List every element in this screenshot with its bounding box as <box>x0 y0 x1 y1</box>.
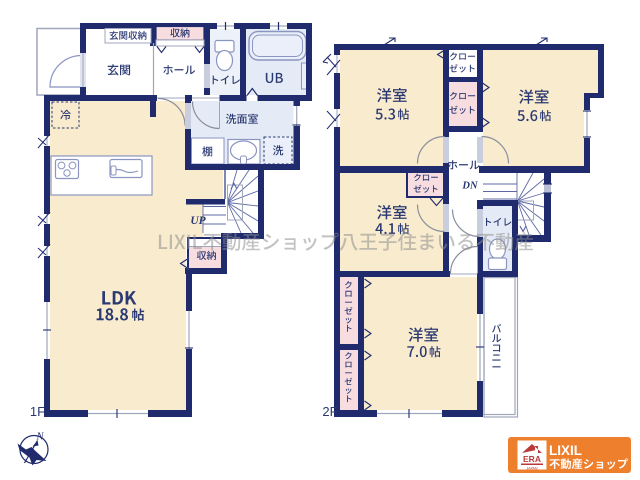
svg-text:JAPAN: JAPAN <box>526 467 537 471</box>
svg-text:LIXIL: LIXIL <box>549 443 582 458</box>
svg-text:ERA: ERA <box>523 454 541 464</box>
svg-text:1F: 1F <box>30 404 45 419</box>
svg-text:UP: UP <box>190 215 206 227</box>
svg-text:N: N <box>35 432 44 443</box>
svg-text:2F: 2F <box>322 404 337 419</box>
svg-text:DN: DN <box>461 181 478 192</box>
